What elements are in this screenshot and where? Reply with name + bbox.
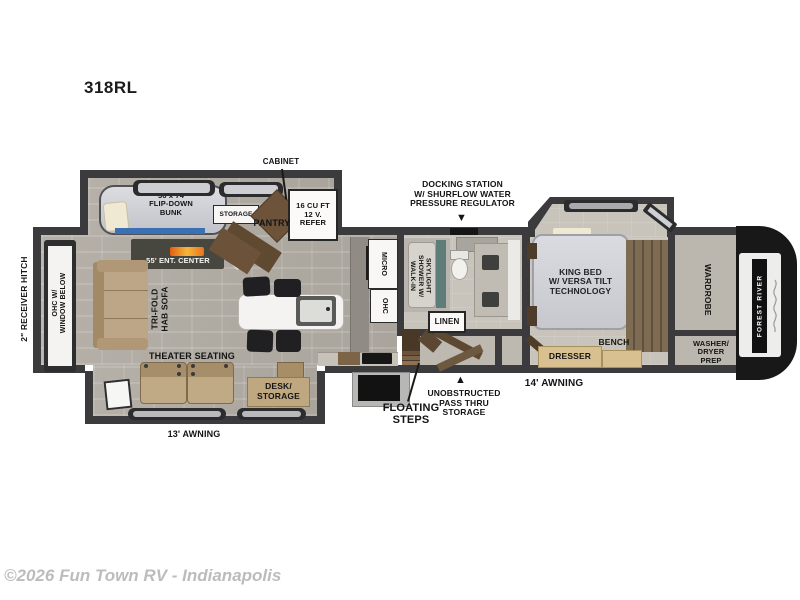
step-tread-2 bbox=[402, 356, 420, 360]
bench-label: BENCH bbox=[592, 338, 636, 348]
cabinet-callout-label: CABINET bbox=[256, 158, 306, 167]
washer-dryer-label: WASHER/ DRYER PREP bbox=[682, 340, 740, 365]
docking-station-unit bbox=[450, 228, 478, 235]
theater-seat-2 bbox=[187, 362, 234, 404]
wall-bath-left bbox=[397, 235, 404, 336]
theater-dot-2 bbox=[177, 364, 181, 368]
desk: DESK/ STORAGE bbox=[247, 377, 310, 407]
wardrobe-label-box: WARDROBE bbox=[698, 248, 716, 332]
entry-step-box bbox=[358, 375, 400, 401]
island-chair-3 bbox=[247, 330, 274, 353]
micro-label: MICRO bbox=[369, 240, 397, 288]
shower-label: WALK-IN SHOWER W/ SKYLIGHT bbox=[404, 244, 436, 308]
refer-label: 16 CU FT 12 V. REFER bbox=[296, 202, 330, 227]
slide-window-1-glass bbox=[133, 411, 221, 417]
pass-thru-label: UNOBSTRUCTED PASS THRU STORAGE bbox=[420, 389, 508, 418]
wall-wardrobe-left bbox=[668, 235, 675, 365]
island-faucet bbox=[326, 307, 330, 311]
shower-glass bbox=[436, 240, 446, 308]
wardrobe-label: WARDROBE bbox=[698, 248, 716, 332]
receiver-hitch-label: 2" RECEIVER HITCH bbox=[20, 256, 30, 341]
ohc-box: OHC bbox=[370, 289, 398, 323]
island-chair-1 bbox=[243, 276, 271, 296]
wall-rear-end bbox=[33, 227, 41, 373]
docking-arrow-icon: ▼ bbox=[456, 212, 467, 224]
vanity-mirror-strip bbox=[508, 240, 520, 320]
sofa-seat bbox=[104, 262, 148, 348]
docking-station-label: DOCKING STATION W/ SHURFLOW WATER PRESSU… bbox=[390, 180, 535, 209]
theater-dot-3 bbox=[177, 372, 181, 376]
bunk-window-1-glass bbox=[138, 183, 210, 193]
awning-14-label: 14' AWNING bbox=[516, 378, 592, 389]
kitchen-cabinet-bottom bbox=[338, 352, 360, 365]
slide-window-2-glass bbox=[242, 411, 301, 417]
sofa-arm-bottom bbox=[97, 338, 148, 350]
theater-slide-wall-right bbox=[317, 371, 325, 424]
pass-thru-arrow-icon: ▲ bbox=[455, 374, 466, 386]
theater-dot-5 bbox=[191, 372, 195, 376]
brand-name-label: FOREST RIVER bbox=[756, 275, 763, 337]
ohc-window-label: OHC W/ WINDOW BELOW bbox=[52, 273, 68, 334]
vanity-sink-1 bbox=[482, 255, 499, 270]
king-bed-label: KING BED W/ VERSA TILT TECHNOLOGY bbox=[549, 268, 612, 297]
bedroom-wood-floor bbox=[626, 240, 668, 352]
watermark: ©2026 Fun Town RV - Indianapolis bbox=[4, 566, 281, 586]
toilet-bowl bbox=[451, 258, 468, 280]
step-tread-1 bbox=[402, 351, 420, 355]
desk-label: DESK/ STORAGE bbox=[257, 382, 300, 401]
ohc-label: OHC bbox=[371, 290, 397, 322]
bunk-slide-wall-top bbox=[80, 170, 342, 178]
sofa-seam-2 bbox=[104, 318, 148, 319]
fireplace bbox=[170, 247, 204, 256]
wall-passthru-right bbox=[495, 336, 502, 365]
island-chair-2 bbox=[274, 279, 301, 297]
tri-fold-sofa-label: TRI-FOLD HAB SOFA bbox=[150, 286, 169, 331]
sofa-arm-top bbox=[97, 260, 148, 272]
refrigerator-box: 16 CU FT 12 V. REFER bbox=[288, 189, 338, 241]
wall-top-center bbox=[342, 227, 529, 235]
pantry-label: PANTRY bbox=[248, 218, 296, 228]
island-chair-4 bbox=[276, 330, 301, 352]
theater-seat-1 bbox=[140, 362, 187, 404]
linen-box: LINEN bbox=[428, 311, 466, 333]
dresser-label: DRESSER bbox=[549, 352, 591, 362]
vanity-sink-2 bbox=[482, 292, 499, 307]
nightstand-1 bbox=[527, 243, 537, 259]
floorplan-page: 318RL ©2026 Fun Town RV - Indianapolis O… bbox=[0, 0, 800, 600]
bench bbox=[602, 350, 642, 368]
sofa-seam-1 bbox=[104, 290, 148, 291]
theater-dot-4 bbox=[191, 364, 195, 368]
brand-script-logo bbox=[770, 278, 780, 334]
tv-accent bbox=[115, 228, 205, 234]
linen-label: LINEN bbox=[435, 318, 460, 327]
theater-dot-1 bbox=[144, 364, 148, 368]
bunk-window-2-glass bbox=[224, 185, 278, 194]
range-cooktop bbox=[362, 353, 392, 364]
bunk-slide-wall-left bbox=[80, 170, 88, 235]
awning-13-label: 13' AWNING bbox=[158, 429, 230, 439]
page-title: 318RL bbox=[84, 78, 138, 97]
theater-dot-6 bbox=[224, 364, 228, 368]
nightstand-2 bbox=[527, 306, 537, 326]
slide-corner-window bbox=[104, 379, 133, 411]
shower-label-box: WALK-IN SHOWER W/ SKYLIGHT bbox=[404, 244, 436, 308]
theater-seating-label: THEATER SEATING bbox=[146, 351, 238, 361]
island-sink-basin bbox=[300, 300, 332, 322]
wall-top-front bbox=[672, 227, 740, 235]
king-bed: KING BED W/ VERSA TILT TECHNOLOGY bbox=[532, 234, 629, 330]
micro-box: MICRO bbox=[368, 239, 398, 289]
bedroom-slide-window-glass bbox=[569, 203, 633, 209]
dresser: DRESSER bbox=[538, 346, 602, 368]
